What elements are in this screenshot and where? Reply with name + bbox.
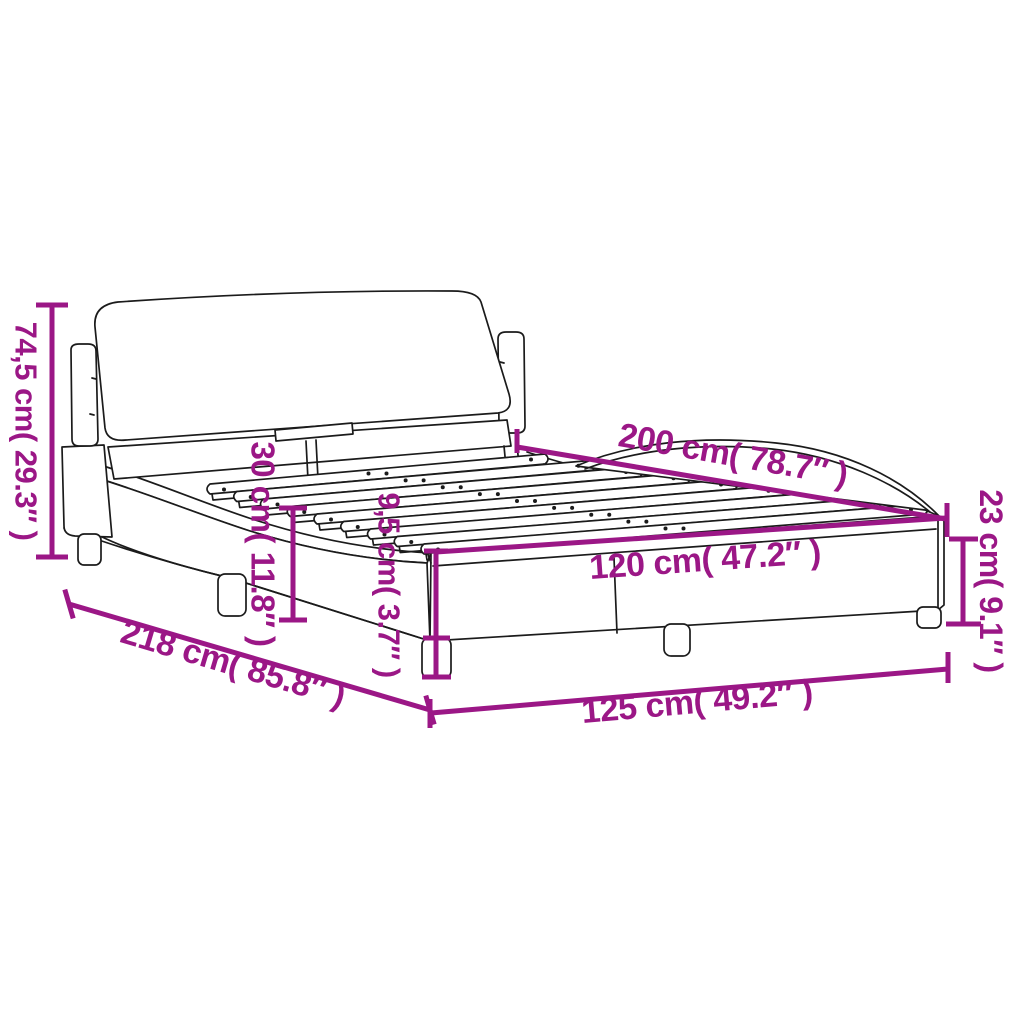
slat-screw-dot	[496, 492, 500, 496]
slat-screw-dot	[664, 527, 668, 531]
label-foot-end-height: 23 cm( 9.1″ )	[973, 489, 1009, 672]
headboard-base-box	[62, 445, 112, 537]
slat-screw-dot	[302, 510, 306, 514]
headboard-cushion	[95, 291, 510, 440]
slat-screw-dot	[478, 492, 482, 496]
slat-screw-dot	[589, 513, 593, 517]
slat-screw-dot	[404, 478, 408, 482]
leg-headboard	[78, 534, 101, 565]
slat-screw-dot	[222, 488, 226, 492]
slat-screw-dot	[529, 458, 533, 462]
slat-screw-dot	[607, 513, 611, 517]
slat-screw-dot	[385, 472, 389, 476]
slat-screw-dot	[356, 525, 360, 529]
label-leg-height: 9,5 cm( 3.7″ )	[372, 492, 407, 677]
label-total-width: 125 cm( 49.2″ )	[580, 673, 814, 731]
slat-screw-dot	[422, 478, 426, 482]
slat-screw-dot	[459, 485, 463, 489]
bed-frame-diagram-svg: 74,5 cm( 29.3″ ) 30 cm( 11.8″ ) 9,5 cm( …	[0, 0, 1024, 1024]
slat-screw-dot	[570, 506, 574, 510]
label-total-length: 218 cm( 85.8″ )	[116, 613, 349, 715]
slat-screw-dot	[682, 527, 686, 531]
leg-back-left	[218, 574, 246, 616]
slat-screw-dot	[515, 499, 519, 503]
slat-screw-dot	[367, 472, 371, 476]
headboard-post-left	[71, 344, 98, 446]
slat-screw-dot	[626, 520, 630, 524]
leg-right-rear	[917, 607, 941, 628]
slat-screw-dot	[441, 485, 445, 489]
leg-front-middle	[664, 624, 690, 656]
slat-screw-dot	[533, 499, 537, 503]
foot-face	[938, 516, 944, 610]
label-total-height: 74,5 cm( 29.3″ )	[9, 322, 44, 541]
label-headboard-clearance: 30 cm( 11.8″ )	[245, 441, 282, 646]
slat-screw-dot	[644, 520, 648, 524]
dimension-diagram: 74,5 cm( 29.3″ ) 30 cm( 11.8″ ) 9,5 cm( …	[0, 0, 1024, 1024]
slat-screw-dot	[329, 518, 333, 522]
slat-screw-dot	[409, 540, 413, 544]
slat-screw-dot	[552, 506, 556, 510]
